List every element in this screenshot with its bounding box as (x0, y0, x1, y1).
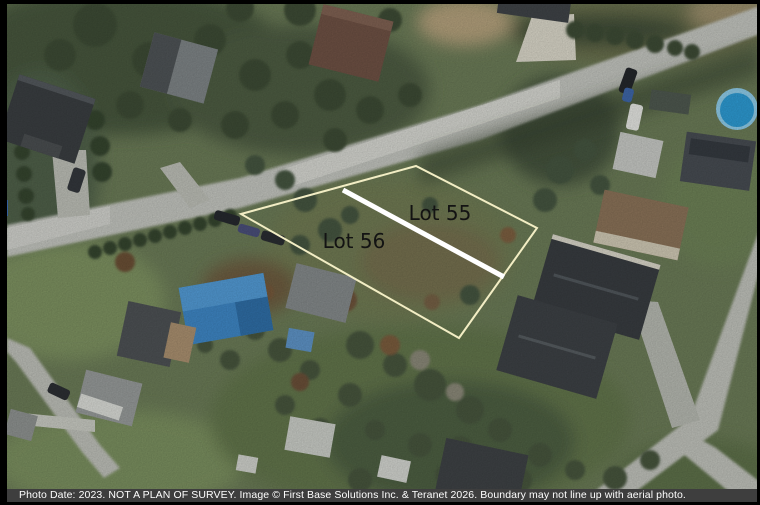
caption-bar: Photo Date: 2023. NOT A PLAN OF SURVEY. … (7, 489, 757, 502)
lot-56-label: Lot 56 (323, 229, 386, 253)
listing-aerial-photo: Lot 55 Lot 56 Photo Date: 2023. NOT A PL… (0, 0, 760, 505)
caption-text: Photo Date: 2023. NOT A PLAN OF SURVEY. … (19, 489, 686, 501)
aerial-photo: Lot 55 Lot 56 (0, 0, 760, 505)
lot-55-label: Lot 55 (409, 201, 472, 225)
